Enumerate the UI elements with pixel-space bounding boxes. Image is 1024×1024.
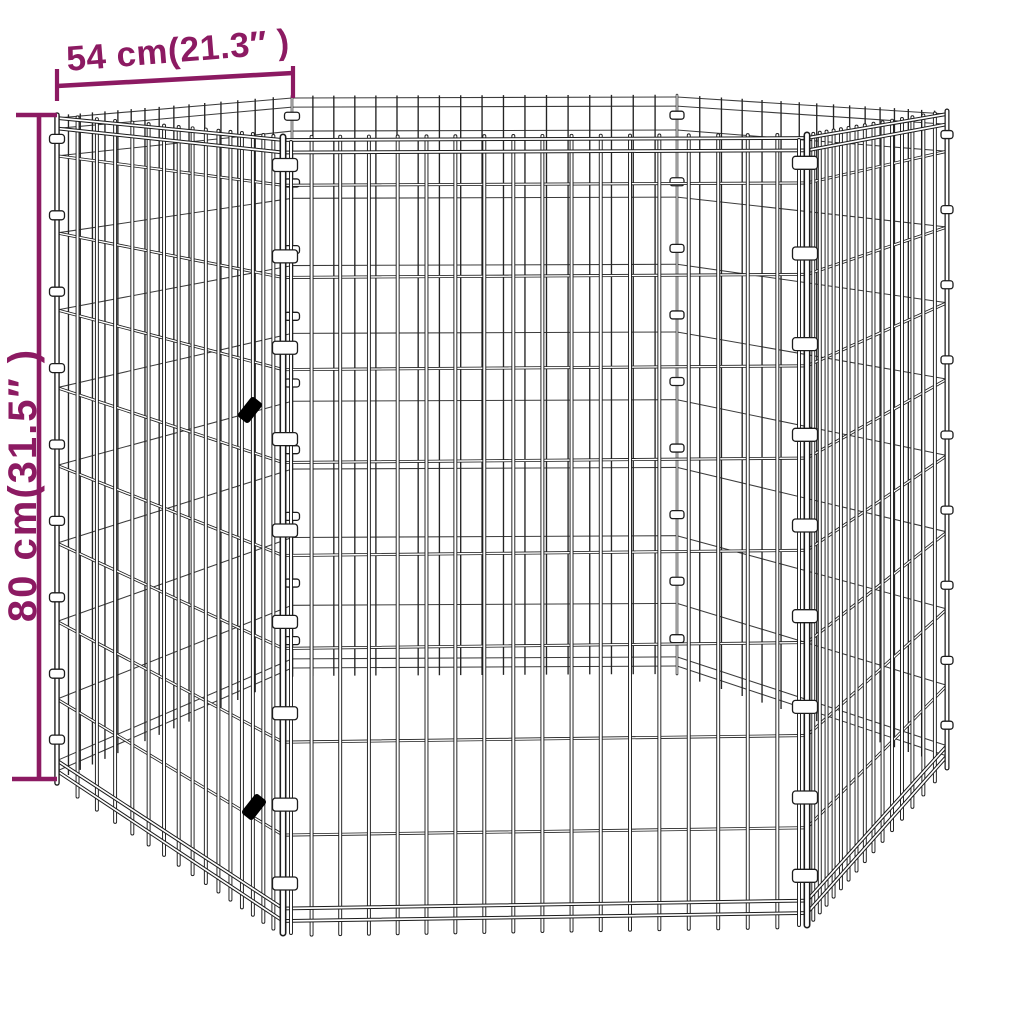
cage-front-corner-posts — [50, 111, 954, 933]
playpen-wireframe — [0, 0, 1024, 1024]
product-diagram-canvas: 54 cm(21.3″ ) 80 cm(31.5″ ) — [0, 0, 1024, 1024]
